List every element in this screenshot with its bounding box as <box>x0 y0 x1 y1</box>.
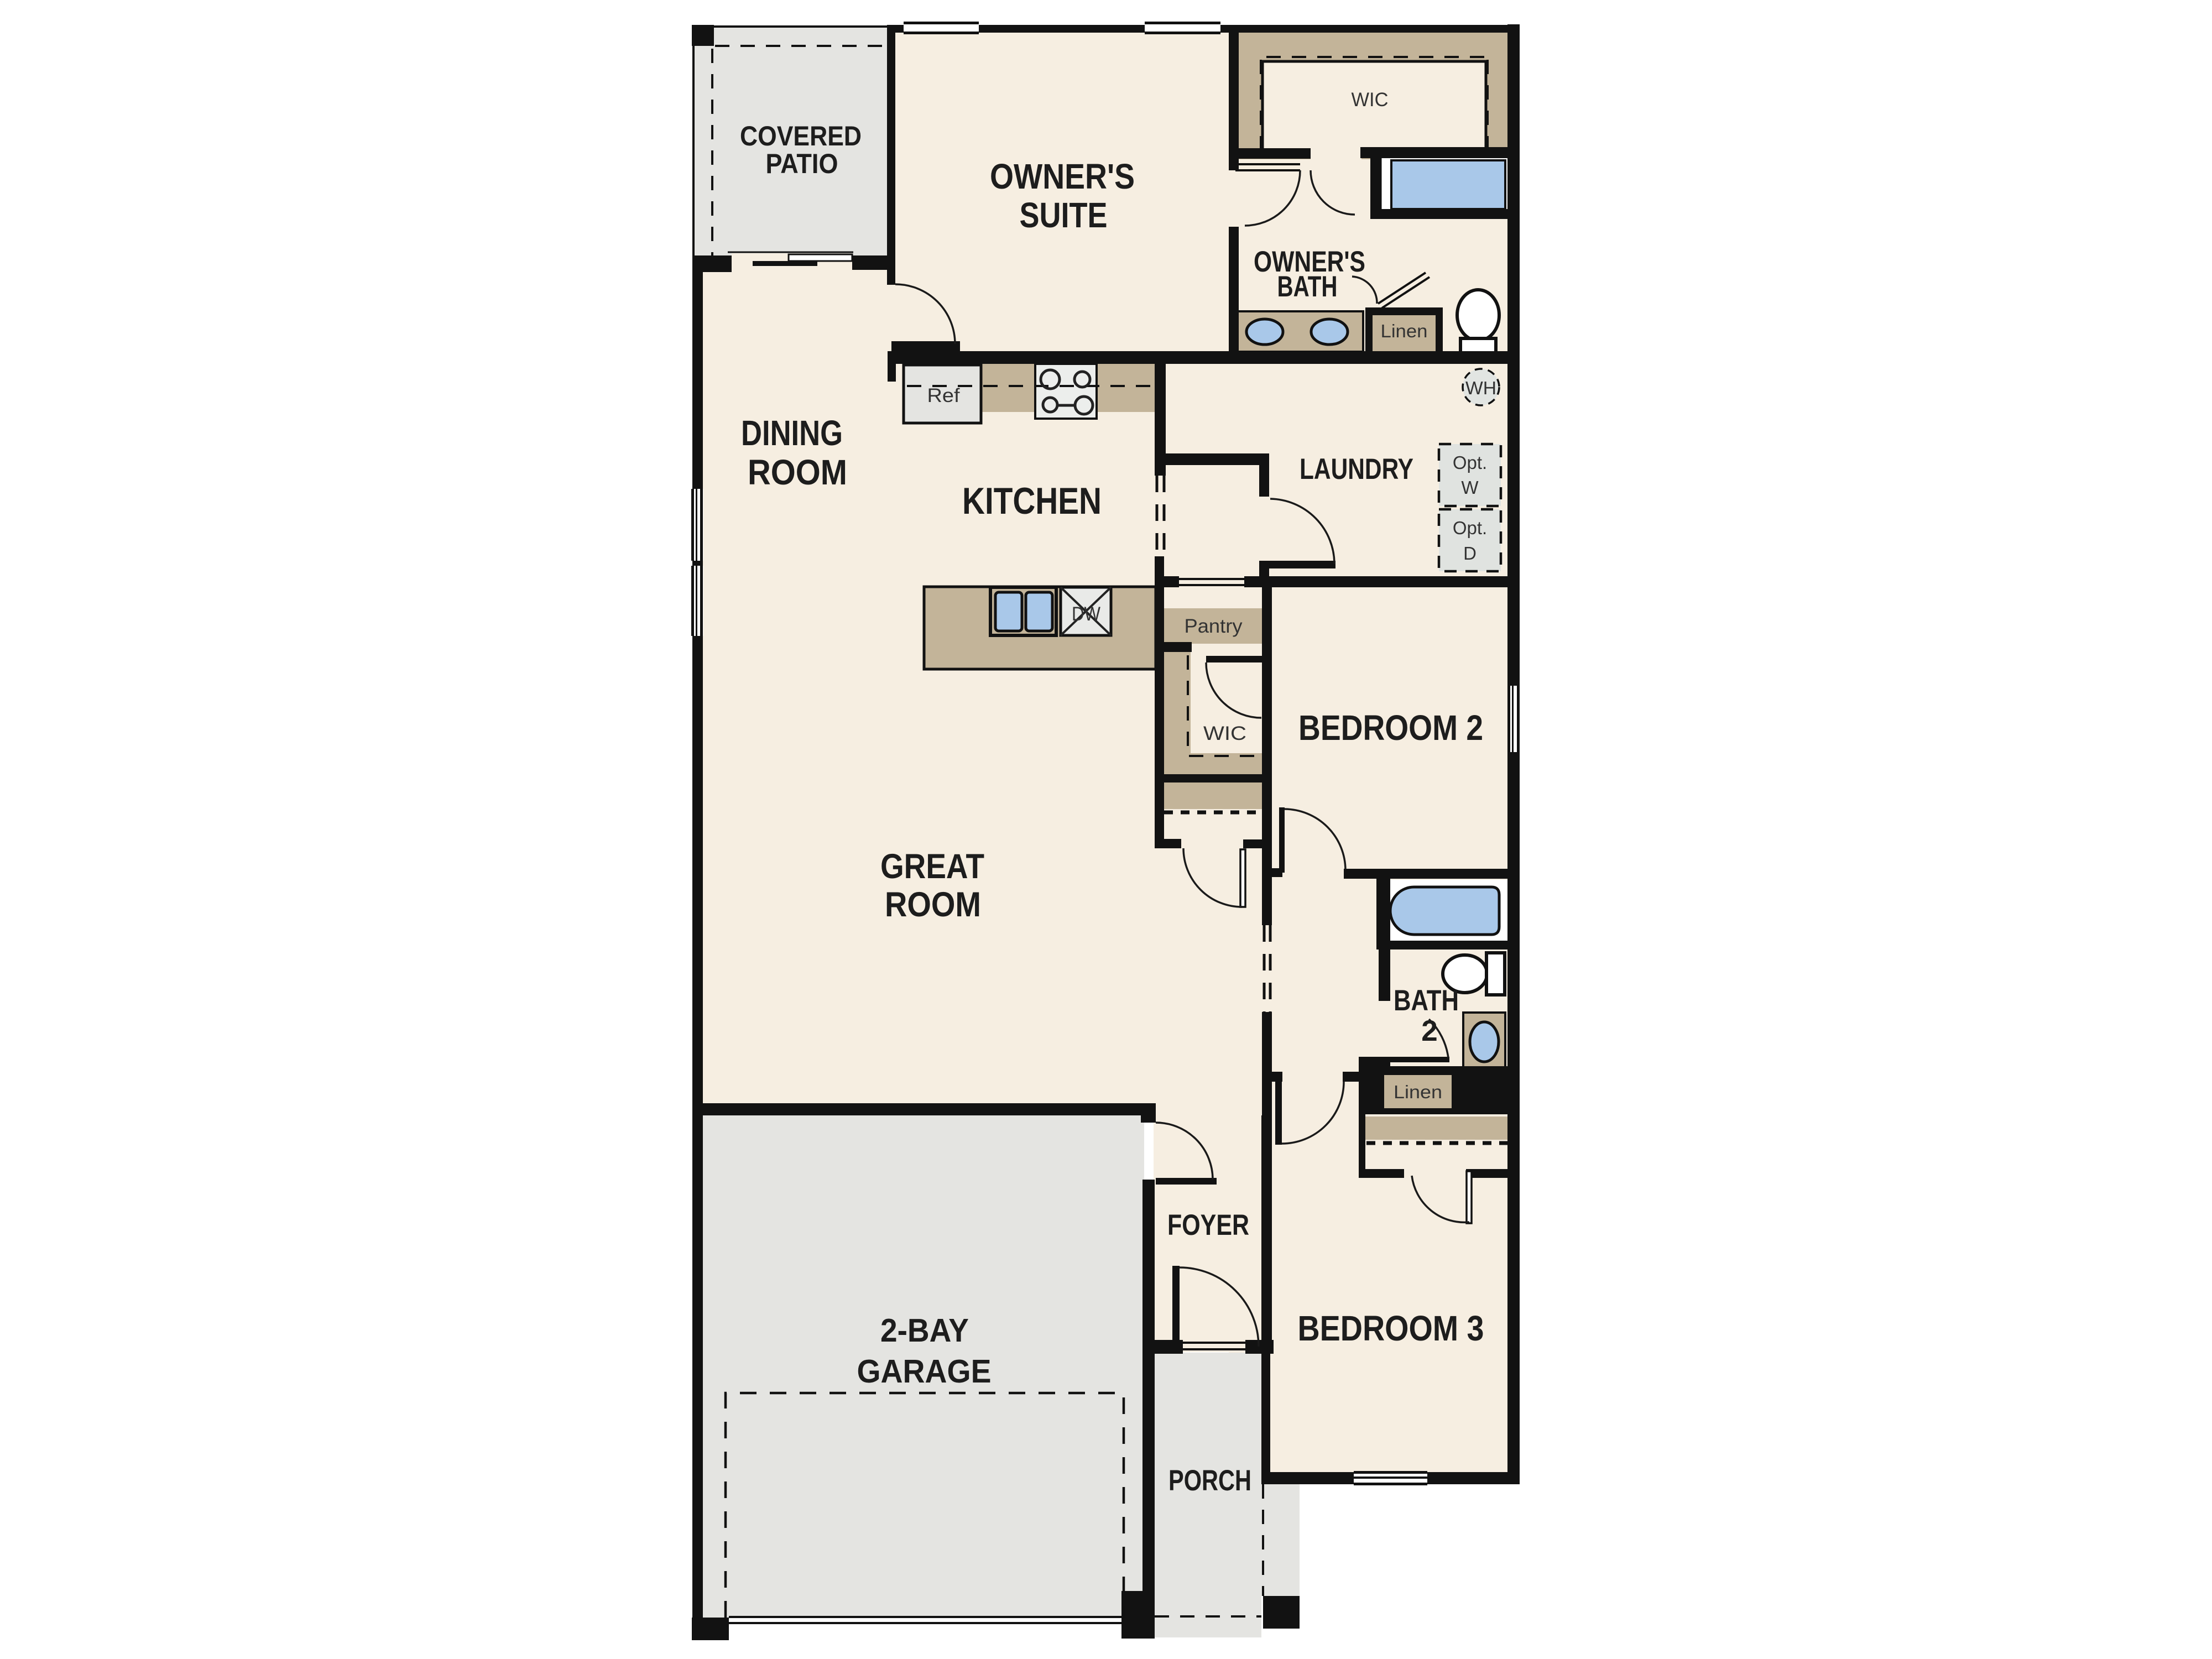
svg-text:BATH: BATH <box>1277 270 1338 303</box>
svg-text:BEDROOM 3: BEDROOM 3 <box>1298 1308 1484 1348</box>
svg-text:2: 2 <box>1421 1015 1437 1047</box>
svg-text:SUITE: SUITE <box>1020 195 1108 235</box>
svg-text:Opt.: Opt. <box>1453 452 1487 473</box>
svg-text:GARAGE: GARAGE <box>857 1353 992 1390</box>
svg-text:GREAT: GREAT <box>880 847 984 886</box>
svg-text:OWNER'S: OWNER'S <box>990 156 1135 196</box>
svg-text:D: D <box>1463 543 1477 564</box>
svg-text:W: W <box>1461 477 1479 498</box>
svg-text:Linen: Linen <box>1394 1082 1442 1102</box>
svg-text:ROOM: ROOM <box>885 885 981 924</box>
svg-text:WIC: WIC <box>1352 89 1389 111</box>
svg-text:WH: WH <box>1465 378 1496 398</box>
svg-text:ROOM: ROOM <box>748 452 847 492</box>
svg-text:BATH: BATH <box>1394 984 1459 1017</box>
svg-text:Linen: Linen <box>1381 321 1428 341</box>
svg-text:PORCH: PORCH <box>1168 1464 1251 1497</box>
svg-text:LAUNDRY: LAUNDRY <box>1300 453 1413 486</box>
svg-text:DINING: DINING <box>741 413 843 453</box>
svg-text:PATIO: PATIO <box>766 148 838 179</box>
svg-text:2-BAY: 2-BAY <box>880 1312 969 1349</box>
svg-text:FOYER: FOYER <box>1167 1209 1249 1241</box>
svg-text:BEDROOM 2: BEDROOM 2 <box>1298 708 1483 748</box>
svg-text:COVERED: COVERED <box>740 121 862 152</box>
svg-text:DW: DW <box>1072 603 1100 625</box>
svg-text:WIC: WIC <box>1203 723 1246 744</box>
svg-text:KITCHEN: KITCHEN <box>962 480 1102 522</box>
svg-text:Ref: Ref <box>927 385 960 406</box>
svg-text:Pantry: Pantry <box>1185 615 1243 637</box>
svg-text:Opt.: Opt. <box>1453 518 1487 538</box>
